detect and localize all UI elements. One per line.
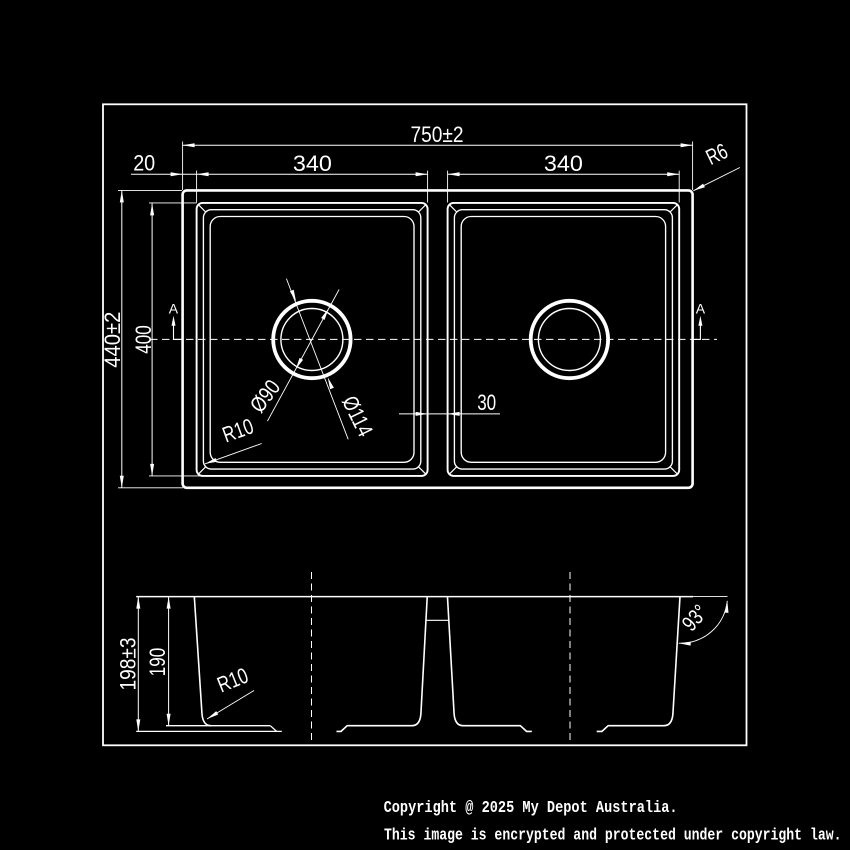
svg-text:400: 400: [131, 325, 156, 354]
svg-text:440±2: 440±2: [100, 312, 125, 368]
svg-text:30: 30: [477, 390, 496, 415]
svg-text:340: 340: [544, 151, 583, 176]
svg-text:198±3: 198±3: [115, 638, 140, 691]
svg-text:A: A: [696, 301, 706, 317]
svg-text:20: 20: [133, 151, 155, 176]
svg-text:Copyright @ 2025 My Depot Aust: Copyright @ 2025 My Depot Australia.: [384, 799, 678, 818]
svg-text:A: A: [169, 301, 179, 317]
svg-text:340: 340: [293, 151, 332, 176]
svg-text:750±2: 750±2: [411, 122, 464, 147]
svg-text:190: 190: [145, 648, 170, 677]
svg-text:This image is encrypted and pr: This image is encrypted and protected un…: [384, 827, 842, 846]
